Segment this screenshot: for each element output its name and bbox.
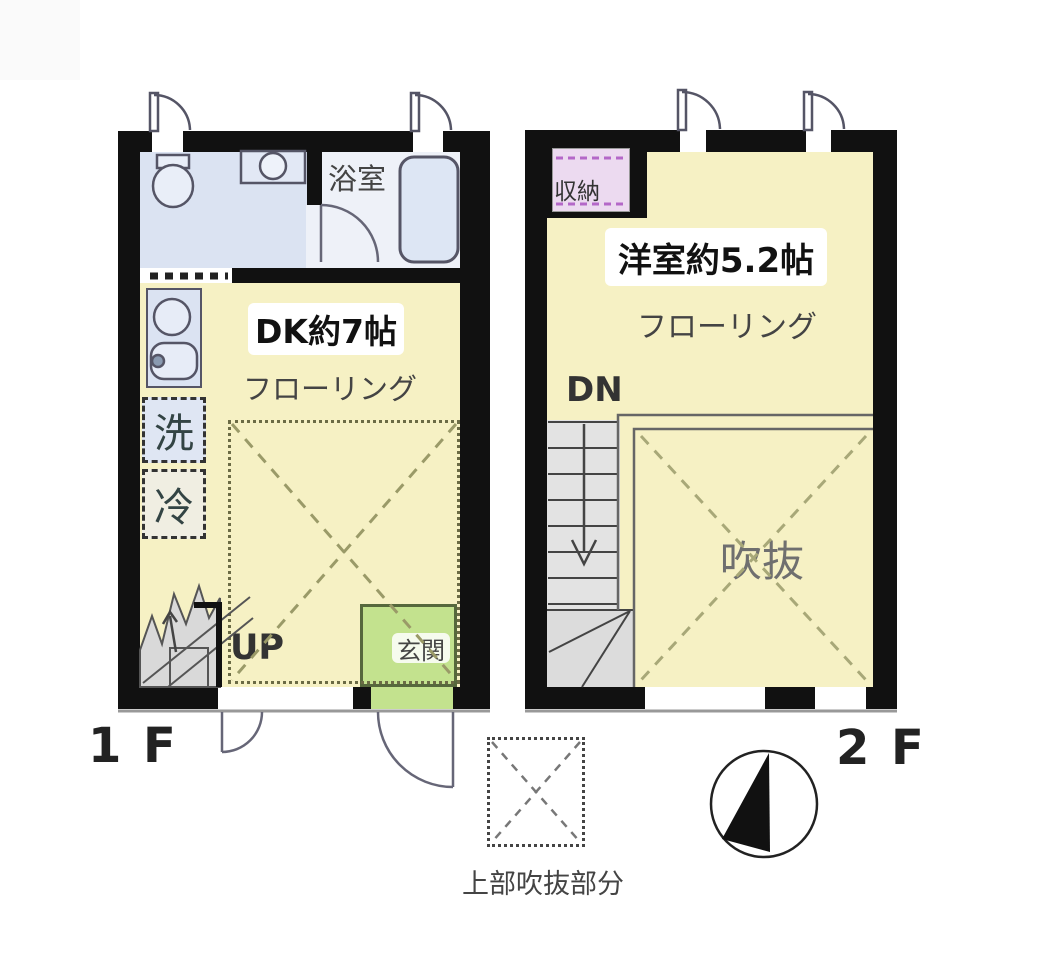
washer-box: 洗 — [142, 397, 206, 463]
f2-bottom-window-gap-right — [815, 687, 866, 709]
scan-artifact — [0, 0, 80, 80]
entrance-door-arc — [378, 712, 453, 787]
dn-label: DN — [566, 370, 623, 410]
f1-top-window-gap-right — [413, 131, 443, 152]
f2-top-window-gap-right — [806, 130, 831, 152]
f1-sanitary-door-opening — [140, 268, 232, 283]
fridge-box: 冷 — [142, 469, 206, 539]
f1-toilet-room — [140, 152, 307, 268]
kitchen-unit — [146, 288, 202, 388]
f2-top-window-gap-left — [680, 130, 706, 152]
f2-stairs-winder — [547, 610, 634, 687]
bathroom-label: 浴室 — [328, 156, 386, 198]
f1-bath-door-gap — [306, 205, 322, 268]
storage-label: 収納 — [554, 172, 600, 206]
western-room-label: 洋室約5.2帖 — [618, 233, 814, 282]
f1-bottom-window-gap — [218, 687, 353, 709]
floor1-label: 1F — [88, 718, 197, 774]
floor-plan-canvas: 洗 冷 玄関 DK約7帖 フローリング 浴室 UP 1F 収納 — [0, 0, 1064, 972]
f1-top-window-gap-left — [152, 131, 183, 152]
f2-bottom-window-gap-left — [645, 687, 765, 709]
f2-stairs-area — [547, 420, 620, 610]
f1-top-window-right-icon — [411, 93, 451, 131]
washer-label: 洗 — [154, 401, 194, 459]
f2-flooring-label: フローリング — [637, 302, 817, 346]
western-room-label-chip: 洋室約5.2帖 — [605, 228, 827, 286]
dk-label: DK約7帖 — [255, 305, 397, 353]
dk-label-chip: DK約7帖 — [248, 303, 404, 355]
f2-top-window-left-icon — [678, 90, 720, 130]
legend-void-label: 上部吹抜部分 — [462, 862, 624, 901]
up-label: UP — [230, 628, 284, 668]
f1-top-window-left-icon — [150, 93, 190, 131]
fridge-label: 冷 — [154, 475, 194, 533]
compass-icon — [711, 751, 817, 857]
floor2-label: 2F — [836, 720, 945, 776]
f2-top-window-right-icon — [804, 92, 844, 130]
f1-back-door-arc — [222, 712, 262, 752]
legend-void-square — [487, 737, 585, 847]
f1-flooring-label: フローリング — [243, 366, 417, 408]
void-label: 吹抜 — [720, 528, 804, 589]
f1-entrance-opening — [371, 687, 453, 709]
